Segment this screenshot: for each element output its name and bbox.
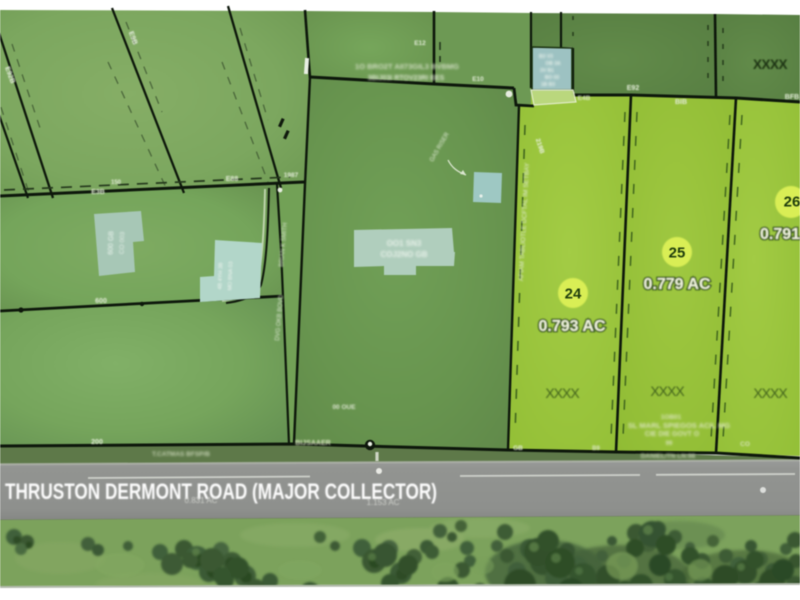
- svg-text:CIE DIE GOVT O: CIE DIE GOVT O: [645, 431, 700, 438]
- svg-text:DANIEL/TN LN:98: DANIEL/TN LN:98: [641, 453, 696, 460]
- svg-text:24: 24: [565, 286, 582, 303]
- svg-text:E92: E92: [627, 85, 640, 92]
- svg-text:BO 03: BO 03: [545, 75, 560, 81]
- svg-text:00 OUE: 00 OUE: [332, 404, 356, 411]
- svg-text:BIB: BIB: [675, 99, 687, 106]
- svg-text:E3B: E3B: [91, 189, 105, 196]
- svg-text:0.831 AC: 0.831 AC: [185, 496, 218, 505]
- svg-text:GB: GB: [513, 445, 523, 452]
- svg-text:150: 150: [111, 180, 122, 186]
- svg-text:XXXX: XXXX: [753, 385, 788, 401]
- svg-text:E10: E10: [472, 76, 484, 83]
- svg-text:COJ2NO GB: COJ2NO GB: [380, 250, 427, 259]
- svg-text:OB 3A: OB 3A: [545, 61, 561, 67]
- svg-text:BIJSAAER: BIJSAAER: [295, 440, 330, 447]
- svg-text:4B 4YH 3B: 4B 4YH 3B: [218, 262, 225, 290]
- svg-text:XXXX: XXXX: [545, 385, 580, 401]
- svg-text:E88: E88: [226, 176, 239, 183]
- svg-text:3BIJ03I RTOV23RI EES: 3BIJ03I RTOV23RI EES: [368, 75, 445, 82]
- svg-text:BFB: BFB: [785, 94, 799, 101]
- svg-text:B9: B9: [592, 446, 600, 452]
- svg-text:1O BRO2T AII73GIL3 BVBMG: 1O BRO2T AII73GIL3 BVBMG: [355, 62, 459, 71]
- svg-text:1B B3: 1B B3: [541, 82, 555, 88]
- svg-text:0.779 AC: 0.779 AC: [644, 276, 711, 293]
- svg-text:1.153 AC: 1.153 AC: [367, 498, 400, 507]
- svg-text:E4B: E4B: [578, 95, 591, 102]
- svg-text:3V B1: 3V B1: [540, 68, 554, 74]
- svg-text:1OB01: 1OB01: [661, 414, 682, 421]
- svg-text:0.791 AC: 0.791 AC: [760, 226, 800, 243]
- svg-text:600 GB: 600 GB: [108, 231, 116, 255]
- svg-text:XXXX: XXXX: [753, 57, 788, 72]
- svg-text:25: 25: [669, 245, 686, 262]
- svg-text:E12: E12: [414, 40, 426, 47]
- svg-text:CO 003: CO 003: [119, 231, 127, 254]
- svg-text:SL MARL SPIEGOS ACIL MG: SL MARL SPIEGOS ACIL MG: [628, 421, 730, 430]
- svg-text:XXXX: XXXX: [650, 383, 685, 399]
- svg-text:MO BNA 03: MO BNA 03: [227, 261, 234, 290]
- svg-text:0.793 AC: 0.793 AC: [539, 318, 606, 335]
- svg-text:1987: 1987: [284, 172, 299, 179]
- svg-text:CO: CO: [740, 441, 750, 448]
- svg-text:B3 V3: B3 V3: [539, 54, 553, 60]
- svg-text:26: 26: [784, 194, 800, 211]
- svg-text:200: 200: [91, 439, 103, 446]
- svg-text:OO1 SN3: OO1 SN3: [387, 239, 422, 248]
- svg-text:99: 99: [666, 441, 673, 447]
- svg-text:600: 600: [95, 298, 107, 305]
- svg-text:T.CATMAS BFSP/B: T.CATMAS BFSP/B: [152, 451, 210, 458]
